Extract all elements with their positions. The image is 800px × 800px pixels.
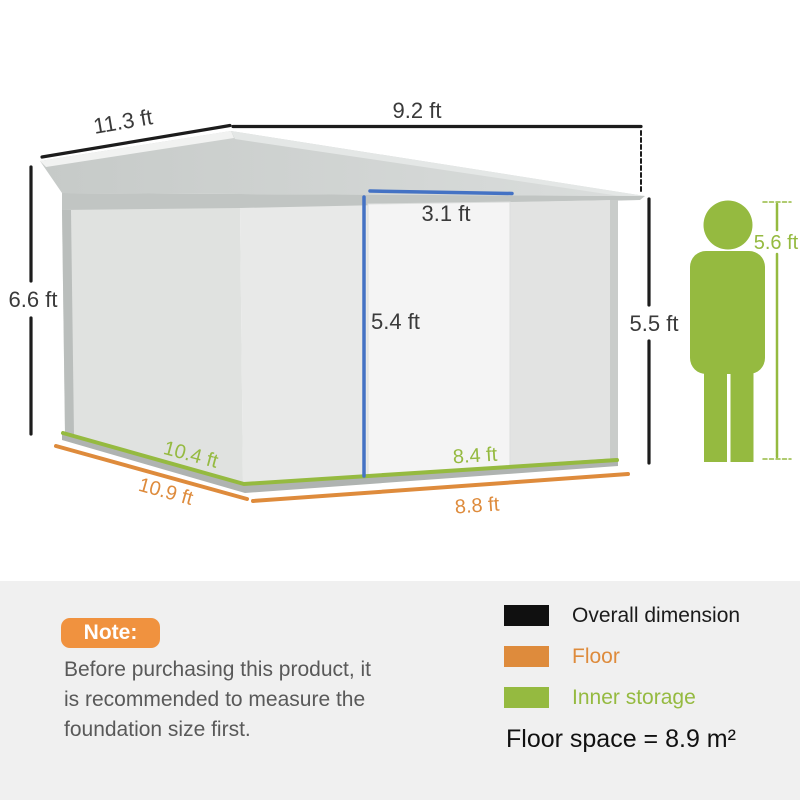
- wall-height-dim-label: 5.5 ft: [630, 311, 679, 336]
- inner-storage-color-swatch: [504, 687, 549, 708]
- door-height-dim-label: 5.4 ft: [371, 309, 420, 334]
- floor-side-dim-label: 10.9 ft: [136, 474, 196, 510]
- legend: Overall dimension Floor Inner storage: [504, 605, 740, 728]
- person-left-leg: [704, 368, 727, 462]
- floor-front-dim-label: 8.8 ft: [454, 494, 500, 519]
- person-body: [690, 251, 765, 374]
- shed-diagram: 10.4 ft 8.4 ft 10.9 ft 8.8 ft 11.3 ft 9.…: [0, 0, 800, 581]
- floor-space-text: Floor space = 8.9 m²: [506, 725, 736, 754]
- inner-front-dim-label: 8.4 ft: [452, 444, 498, 469]
- note-line-2: is recommended to measure the: [64, 685, 371, 715]
- legend-item-floor: Floor: [504, 646, 740, 667]
- overall-height-dim-label: 6.6 ft: [9, 287, 58, 312]
- floor-color-swatch: [504, 646, 549, 667]
- note-text: Before purchasing this product, it is re…: [64, 655, 371, 745]
- person-right-leg: [731, 368, 754, 462]
- legend-item-overall: Overall dimension: [504, 605, 740, 626]
- legend-label-inner-storage: Inner storage: [572, 686, 696, 710]
- door-width-dim-label: 3.1 ft: [422, 201, 471, 226]
- shed-front-wall-right-shade: [510, 200, 618, 467]
- shed-door: [368, 202, 510, 477]
- legend-swatch-floor: [504, 646, 549, 667]
- shed-structure: [40, 131, 645, 493]
- legend-swatch-overall: [504, 605, 549, 626]
- info-panel: Note: Before purchasing this product, it…: [0, 581, 800, 800]
- legend-swatch-inner-storage: [504, 687, 549, 708]
- roof-side-dim-label: 11.3 ft: [91, 104, 154, 138]
- roof-front-dim-label: 9.2 ft: [393, 98, 442, 123]
- person-height-dim-label: 5.6 ft: [754, 232, 799, 254]
- person-head: [704, 201, 753, 250]
- shed-dimensions-infographic: 10.4 ft 8.4 ft 10.9 ft 8.8 ft 11.3 ft 9.…: [0, 0, 800, 800]
- note-line-3: foundation size first.: [64, 715, 371, 745]
- overall-color-swatch: [504, 605, 549, 626]
- legend-label-floor: Floor: [572, 645, 620, 669]
- shed-diagram-svg: 10.4 ft 8.4 ft 10.9 ft 8.8 ft 11.3 ft 9.…: [0, 0, 800, 581]
- note-badge: Note:: [61, 618, 160, 648]
- note-line-1: Before purchasing this product, it: [64, 655, 371, 685]
- legend-label-overall: Overall dimension: [572, 604, 740, 628]
- note-badge-label: Note:: [84, 621, 138, 644]
- shed-right-corner-trim: [610, 200, 618, 461]
- door-width-dim-line: [370, 191, 512, 194]
- legend-item-inner-storage: Inner storage: [504, 687, 740, 708]
